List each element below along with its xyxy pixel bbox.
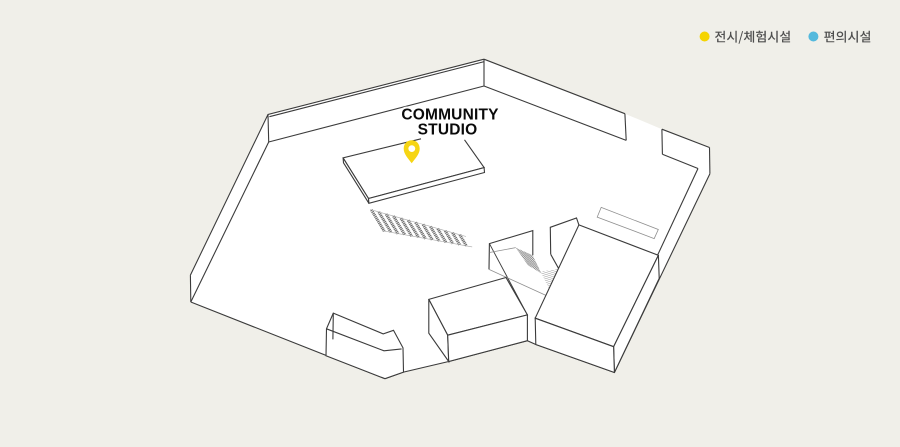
svg-text:STUDIO: STUDIO	[418, 122, 478, 139]
